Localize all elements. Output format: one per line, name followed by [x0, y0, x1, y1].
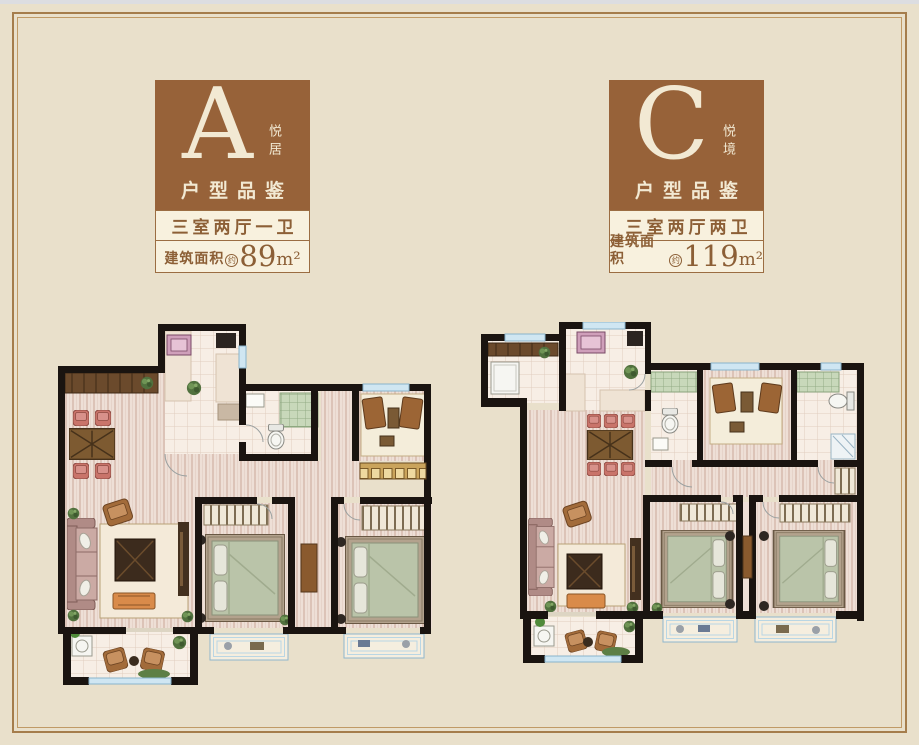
unit-letter-c: C: [609, 76, 734, 174]
unit-card-c-header: C 悦境 户型品鉴: [609, 80, 764, 210]
area-label-c: 建筑面积: [610, 235, 668, 269]
area-value-c: 119: [683, 244, 738, 269]
floorplan-c-floors: [487, 329, 857, 659]
area-approx-a: 约: [225, 254, 238, 267]
bay-window-a2: [344, 634, 424, 658]
unit-tag-c: 悦境: [719, 124, 738, 160]
layout-spec-a: 三室两厅一卫: [155, 210, 310, 241]
floorplan-a-image: [58, 322, 438, 692]
bay-window-c1: [663, 617, 737, 642]
dining-room-c: [587, 414, 635, 476]
area-unit-a: m²: [276, 251, 300, 269]
top-strip: [0, 0, 919, 4]
unit-card-a-header: A 悦居 户型品鉴: [155, 80, 310, 210]
series-title-c: 户型品鉴: [609, 176, 764, 203]
area-line-a: 建筑面积 约 89 m²: [155, 241, 310, 273]
unit-tag-a: 悦居: [265, 124, 284, 160]
study-c: [710, 378, 782, 444]
bay-window-a1: [210, 634, 288, 660]
bay-window-c2: [755, 617, 836, 642]
area-unit-c: m²: [739, 251, 763, 269]
area-approx-c: 约: [669, 254, 682, 267]
area-line-c: 建筑面积 约 119 m²: [609, 241, 764, 273]
series-title-a: 户型品鉴: [155, 176, 310, 203]
study-a: [361, 394, 427, 456]
unit-card-a: A 悦居 户型品鉴 三室两厅一卫 建筑面积 约 89 m²: [155, 80, 310, 273]
floorplan-c-image: [480, 322, 866, 670]
poster: A 悦居 户型品鉴 三室两厅一卫 建筑面积 约 89 m² C 悦境 户型品鉴 …: [0, 0, 919, 745]
area-label-a: 建筑面积: [164, 252, 224, 269]
unit-card-c: C 悦境 户型品鉴 三室两厅两卫 建筑面积 约 119 m²: [609, 80, 764, 273]
unit-letter-a: A: [155, 76, 280, 174]
area-value-a: 89: [239, 244, 276, 269]
